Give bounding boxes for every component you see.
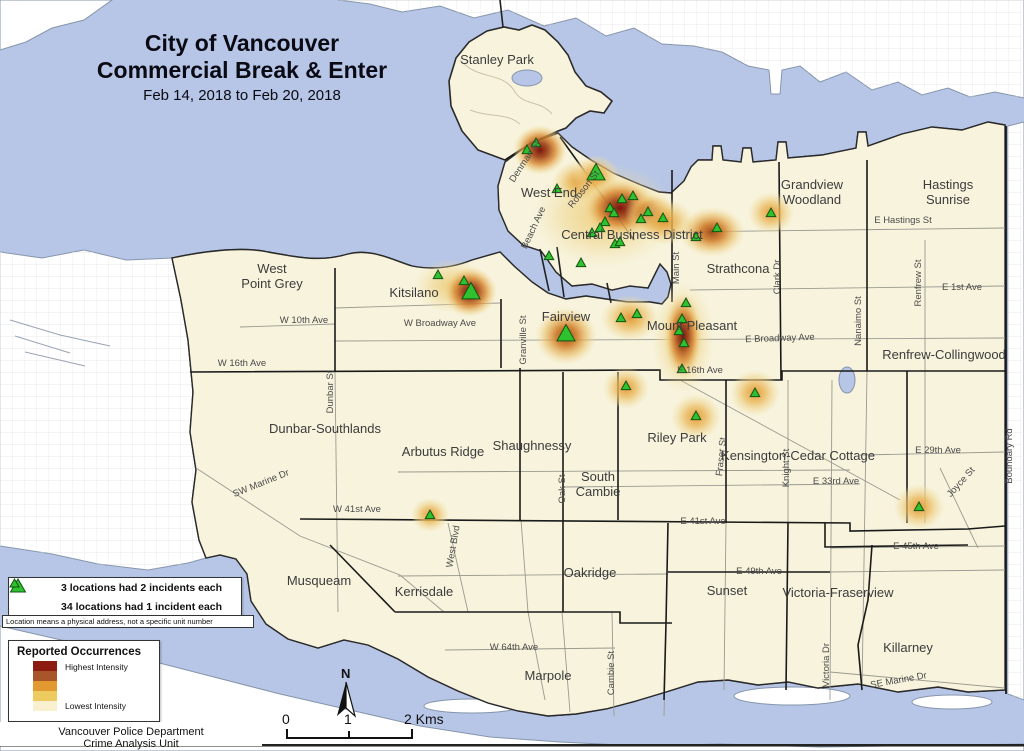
neighborhood-label: Kerrisdale bbox=[395, 584, 454, 599]
street-label: Victoria Dr bbox=[821, 643, 832, 687]
lowest-intensity-label: Lowest Intensity bbox=[65, 701, 126, 711]
crime-map-page: Stanley ParkWest EndCentral Business Dis… bbox=[0, 0, 1024, 751]
incident-legend-note: Location means a physical address, not a… bbox=[2, 615, 254, 628]
ramp-swatch bbox=[33, 691, 57, 701]
burnaby-grid bbox=[1008, 122, 1024, 700]
street-label: W 10th Ave bbox=[280, 315, 328, 326]
legend-label-1-incident: 34 locations had 1 incident each bbox=[61, 601, 222, 613]
ubc-grid bbox=[0, 250, 206, 570]
intensity-legend: Reported Occurrences Highest Intensity L… bbox=[8, 640, 160, 722]
neighborhood-label: Strathcona bbox=[707, 261, 771, 276]
highest-intensity-label: Highest Intensity bbox=[65, 662, 128, 672]
attribution-line-2: Crime Analysis Unit bbox=[0, 738, 262, 750]
neighborhood-label: Killarney bbox=[883, 640, 933, 655]
river-island-2 bbox=[734, 687, 850, 705]
ramp-swatch bbox=[33, 701, 57, 711]
street-label: W 64th Ave bbox=[490, 642, 538, 653]
street-label: W Broadway Ave bbox=[404, 318, 476, 329]
legend-row-2-incidents: 3 locations had 2 incidents each bbox=[9, 578, 241, 597]
neighborhood-label: Arbutus Ridge bbox=[402, 444, 484, 459]
legend-row-1-incident: 34 locations had 1 incident each bbox=[9, 597, 241, 616]
street-label: Oak St bbox=[557, 474, 568, 503]
neighborhood-label: Mount Pleasant bbox=[647, 318, 738, 333]
ramp-swatch bbox=[33, 671, 57, 681]
attribution-block: Vancouver Police Department Crime Analys… bbox=[0, 722, 262, 746]
neighborhood-label: GrandviewWoodland bbox=[781, 177, 844, 207]
neighborhood-label: Dunbar-Southlands bbox=[269, 421, 382, 436]
neighborhood-label: Marpole bbox=[525, 668, 572, 683]
street-label: Cambie St bbox=[606, 650, 617, 695]
street-label: Boundary Rd bbox=[1004, 428, 1015, 483]
street-label: Granville St bbox=[518, 315, 529, 364]
scale-label-2: 2 Kms bbox=[404, 711, 444, 727]
street-label: E 49th Ave bbox=[736, 566, 782, 577]
neighborhood-label: Central Business District bbox=[561, 227, 703, 242]
street-label: Nanaimo St bbox=[853, 296, 864, 346]
street-label: W 41st Ave bbox=[333, 504, 381, 515]
scale-label-1: 1 bbox=[344, 711, 352, 727]
street-label: E 45th Ave bbox=[893, 541, 939, 552]
title-date-range: Feb 14, 2018 to Feb 20, 2018 bbox=[62, 87, 422, 104]
street-label: E 16th Ave bbox=[677, 365, 723, 376]
neighborhood-label: Stanley Park bbox=[460, 52, 534, 67]
intensity-ramp-wrap: Highest Intensity Lowest Intensity bbox=[9, 661, 159, 711]
scale-label-0: 0 bbox=[282, 711, 290, 727]
street-label: Main St bbox=[671, 252, 682, 285]
neighborhood-label: HastingsSunrise bbox=[923, 177, 974, 207]
street-label: E 1st Ave bbox=[942, 282, 982, 293]
neighborhood-label: Kensington-Cedar Cottage bbox=[721, 448, 875, 463]
map-title-block: City of Vancouver Commercial Break & Ent… bbox=[62, 30, 422, 104]
map-canvas: Stanley ParkWest EndCentral Business Dis… bbox=[0, 0, 1024, 751]
neighborhood-label: West End bbox=[521, 185, 577, 200]
street-label: Knight St bbox=[781, 448, 792, 487]
street-label: Clark Dr bbox=[772, 260, 783, 295]
legend-label-2-incidents: 3 locations had 2 incidents each bbox=[61, 582, 222, 594]
ramp-swatch bbox=[33, 681, 57, 691]
neighborhood-label: Oakridge bbox=[564, 565, 617, 580]
street-label: E 41st Ave bbox=[680, 516, 725, 527]
title-line-1: City of Vancouver bbox=[62, 30, 422, 57]
river-island-3 bbox=[912, 695, 992, 709]
north-label: N bbox=[341, 666, 350, 681]
attribution-line-1: Vancouver Police Department bbox=[0, 726, 262, 738]
intensity-color-ramp bbox=[33, 661, 57, 711]
street-label: E 33rd Ave bbox=[813, 476, 859, 487]
neighborhood-label: Sunset bbox=[707, 583, 748, 598]
title-line-2: Commercial Break & Enter bbox=[62, 57, 422, 84]
street-label: E 29th Ave bbox=[915, 445, 961, 456]
neighborhood-label: Shaughnessy bbox=[493, 438, 572, 453]
street-label: E Hastings St bbox=[874, 215, 932, 226]
neighborhood-label: Kitsilano bbox=[389, 285, 438, 300]
neighborhood-label: Fairview bbox=[542, 309, 591, 324]
street-label: Dunbar St bbox=[325, 370, 336, 413]
lost-lagoon-lake bbox=[512, 70, 542, 86]
street-label: W 16th Ave bbox=[218, 358, 266, 369]
neighborhood-label: Victoria-Fraserview bbox=[782, 585, 894, 600]
neighborhood-label: Riley Park bbox=[647, 430, 707, 445]
neighborhood-label: Renfrew-Collingwood bbox=[882, 347, 1006, 362]
neighborhood-label: SouthCambie bbox=[576, 469, 621, 499]
intensity-legend-title: Reported Occurrences bbox=[17, 646, 159, 658]
ramp-swatch bbox=[33, 661, 57, 671]
street-label: Renfrew St bbox=[913, 259, 924, 306]
incident-legend: 3 locations had 2 incidents each 34 loca… bbox=[8, 577, 242, 617]
neighborhood-label: Musqueam bbox=[287, 573, 351, 588]
